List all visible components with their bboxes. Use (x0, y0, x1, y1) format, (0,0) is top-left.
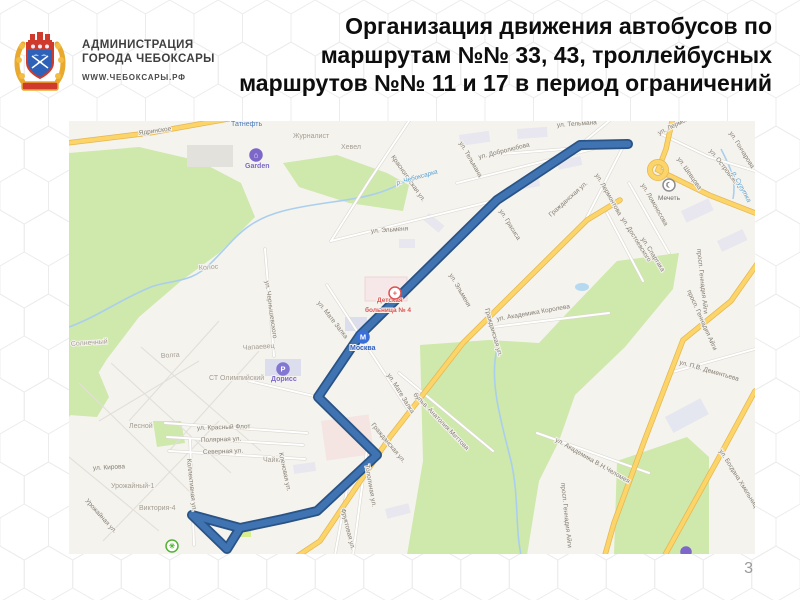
map-label: Хевел (341, 144, 361, 151)
svg-text:+: + (393, 289, 398, 298)
map-label: Журналист (293, 133, 330, 140)
map-label: Татнефть (231, 121, 262, 128)
page-number: 3 (744, 560, 753, 578)
bus-terminus-icon: ✳ (166, 540, 178, 552)
map-label: больница № 4 (365, 306, 411, 314)
map-label: Москва (350, 345, 376, 352)
cheboksary-coat-of-arms-icon (13, 32, 67, 94)
map-label: Полярная ул. (201, 436, 242, 444)
poi-icon (681, 547, 691, 554)
mosque-icon: ☾ (663, 179, 675, 191)
svg-text:⌂: ⌂ (254, 151, 259, 160)
route-map-image: ЯдринскоеТатнефтьЖурналистХевелКрасногор… (69, 121, 755, 554)
parking-doriss-icon: P (277, 363, 289, 375)
svg-text:☾: ☾ (666, 181, 673, 190)
garden-icon: ⌂ (250, 149, 262, 161)
map-label: Мечеть (658, 195, 681, 202)
map-label: СТ Олимпийский (209, 374, 264, 382)
svg-text:✳: ✳ (169, 542, 176, 551)
mall-moskva-icon: М (357, 331, 369, 343)
city-map: ЯдринскоеТатнефтьЖурналистХевелКрасногор… (69, 121, 755, 554)
svg-text:P: P (280, 365, 285, 374)
slide-title: Организация движения автобусов по маршру… (172, 12, 772, 98)
map-label: Дорисс (271, 376, 297, 383)
slide-title-line2: маршрутам №№ 33, 43, троллейбусных (172, 41, 772, 70)
slide-header: АДМИНИСТРАЦИЯ ГОРОДА ЧЕБОКСАРЫ WWW.ЧЕБОК… (0, 0, 800, 115)
map-label: Колос (199, 264, 219, 272)
map-label: Волга (161, 352, 180, 360)
slide-page: { "page": {"number": "3"}, "header": { "… (0, 0, 800, 600)
slide-title-line3: маршрутов №№ 11 и 17 в период ограничени… (172, 69, 772, 98)
slide-title-line1: Организация движения автобусов по (172, 12, 772, 41)
map-label: Виктория-4 (139, 505, 176, 512)
map-label: Северная ул. (203, 448, 244, 456)
svg-text:М: М (360, 333, 366, 342)
map-label: Урожайный-1 (111, 482, 154, 490)
map-label: Garden (245, 163, 270, 170)
map-label: Лесной (129, 422, 153, 430)
hospital-cross-icon: + (389, 287, 401, 299)
